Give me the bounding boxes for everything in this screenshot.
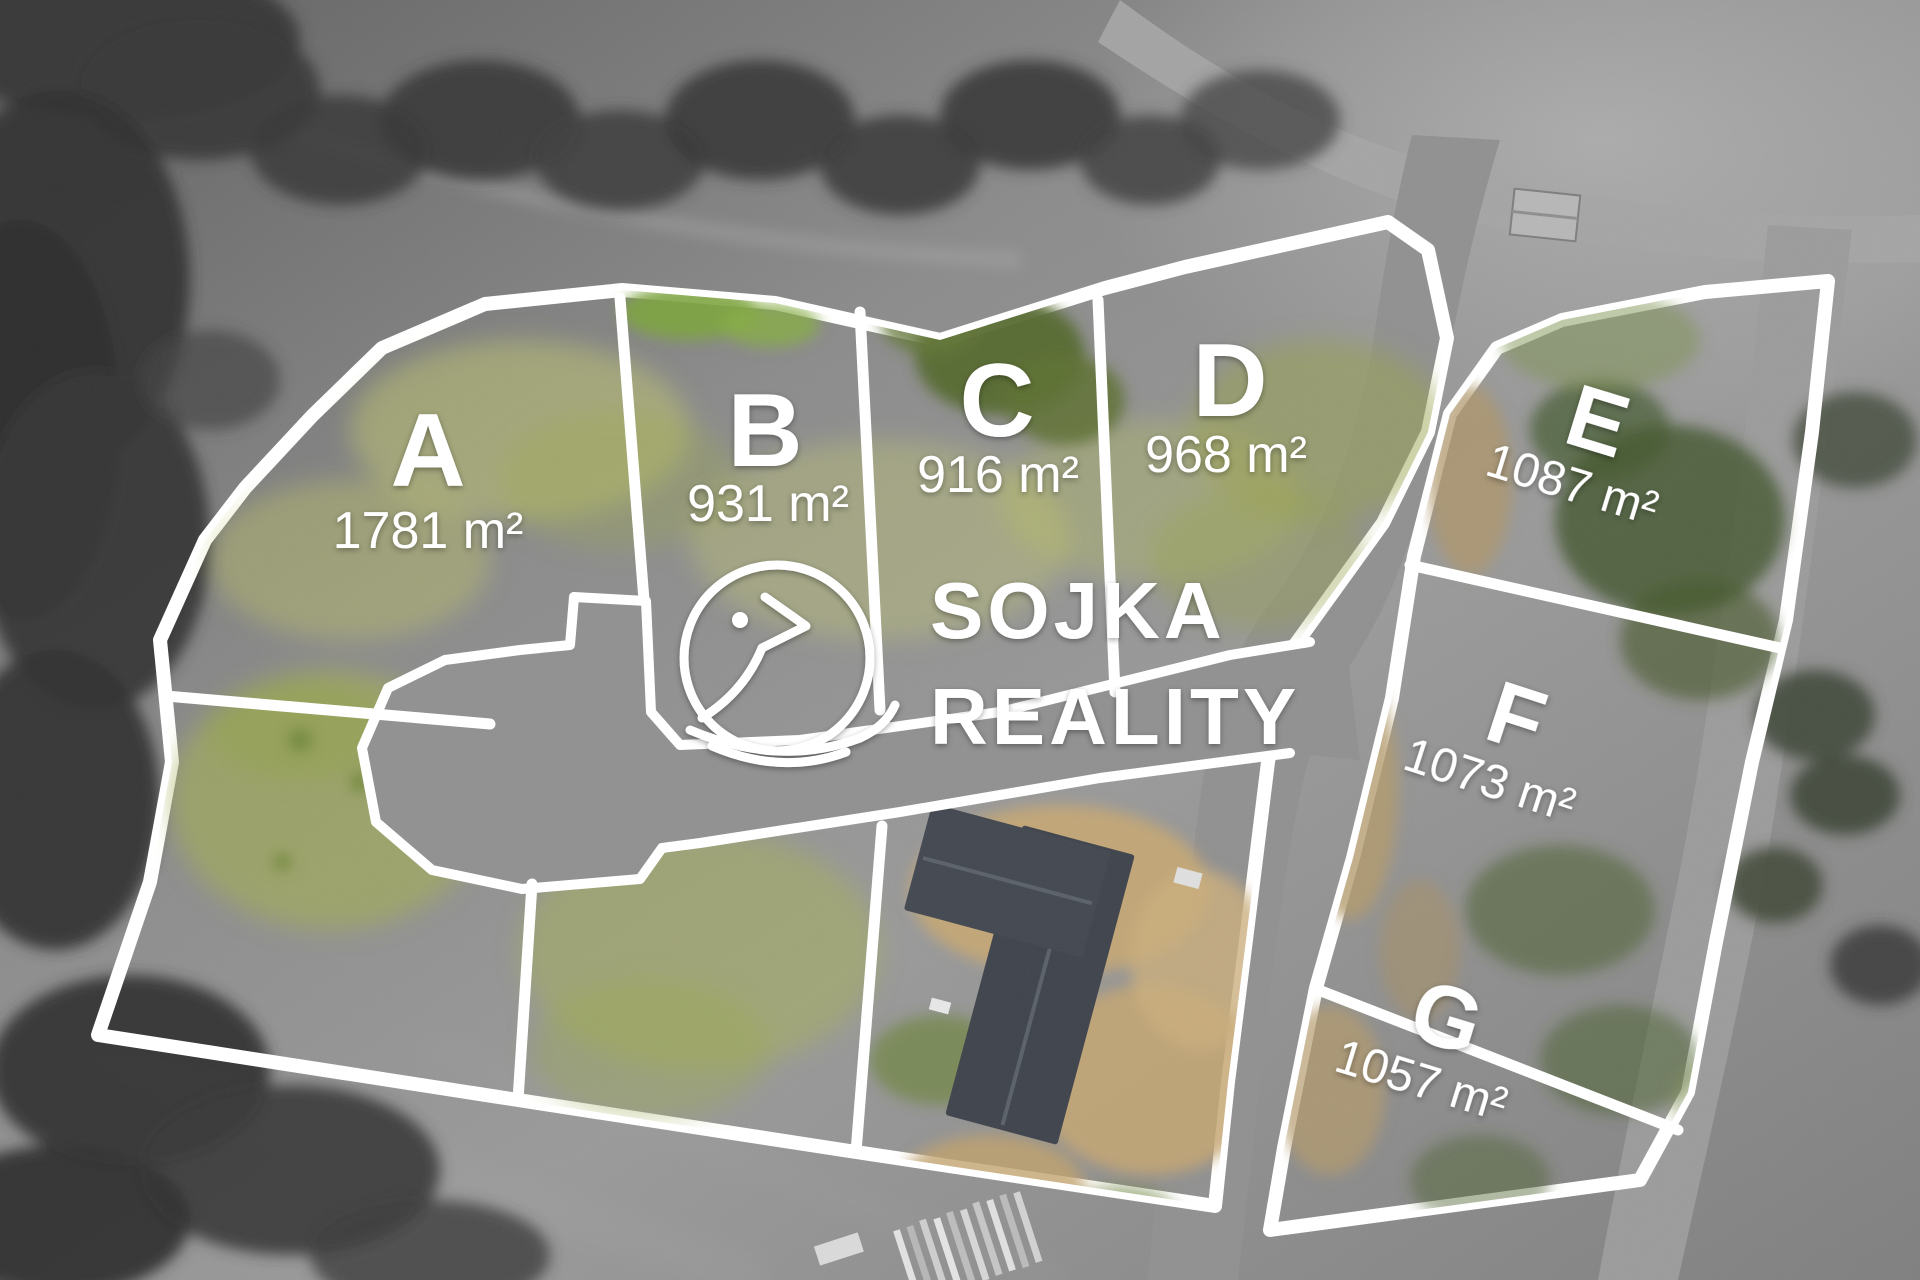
plot-area-a: 1781 m² — [333, 502, 524, 560]
plot-letter-c: C — [959, 343, 1034, 459]
brand-text-line1: SOJKA — [930, 566, 1226, 655]
plot-letter-a: A — [390, 393, 465, 509]
plot-area-b: 931 m² — [687, 475, 849, 533]
aerial-plot-map: A 1781 m² B 931 m² C 916 m² D 968 m² E 1… — [0, 0, 1920, 1280]
plot-map-canvas: A 1781 m² B 931 m² C 916 m² D 968 m² E 1… — [0, 0, 1920, 1280]
bird-eye — [732, 612, 748, 628]
brand-text-line2: REALITY — [930, 672, 1300, 761]
plot-area-c: 916 m² — [917, 446, 1079, 504]
plot-letter-d: D — [1192, 323, 1267, 439]
plot-area-d: 968 m² — [1145, 426, 1307, 484]
plot-letter-b: B — [727, 373, 802, 489]
